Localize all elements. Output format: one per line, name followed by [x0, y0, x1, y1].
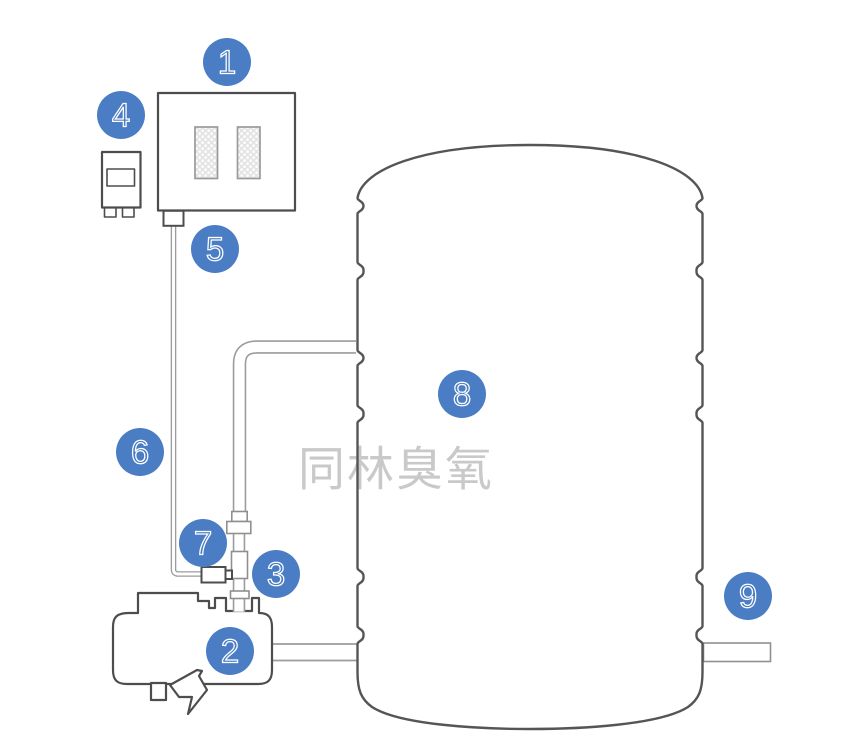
controller-unit: [102, 152, 141, 217]
badge-7-number: 7: [194, 525, 212, 562]
badge-3: 3: [252, 550, 300, 598]
badge-9-number: 9: [739, 578, 757, 615]
ozone-generator: [158, 93, 295, 226]
badge-6: 6: [116, 428, 164, 476]
badge-2: 2: [206, 627, 254, 675]
valve-body-fitting: [232, 552, 248, 579]
pump-to-barrel-pipe: [272, 644, 358, 661]
badge-4-number: 4: [112, 97, 130, 134]
controller-display: [107, 169, 135, 186]
check-valve: [202, 567, 226, 583]
controller-foot-right: [123, 208, 135, 218]
badge-3-number: 3: [267, 556, 285, 593]
badge-8: 8: [438, 370, 486, 418]
badge-2-number: 2: [221, 633, 239, 670]
storage-barrel: 同林臭氧: [272, 145, 771, 729]
union-nut-fitting: [231, 591, 250, 599]
badge-5-number: 5: [206, 231, 224, 268]
badge-7: 7: [179, 519, 227, 567]
barrel-outlet-pipe: [704, 643, 771, 662]
badge-1-number: 1: [218, 44, 236, 81]
badge-6-number: 6: [131, 434, 149, 471]
badge-8-number: 8: [453, 376, 471, 413]
badge-5: 5: [191, 225, 239, 273]
generator-cabinet: [158, 93, 295, 211]
pump-foot: [151, 683, 166, 700]
generator-plate-right: [238, 127, 261, 179]
tube-collar-upper: [232, 512, 247, 522]
watermark-text: 同林臭氧: [298, 443, 494, 496]
tee-fitting: [227, 522, 251, 534]
badge-9: 9: [724, 572, 772, 620]
barrel-body-fill: [358, 145, 703, 729]
badge-4: 4: [97, 91, 145, 139]
badge-1: 1: [203, 38, 251, 86]
generator-outlet-fitting: [164, 211, 184, 226]
generator-plate-left: [195, 127, 218, 179]
ozone-system-diagram: 同林臭氧: [0, 0, 863, 749]
controller-foot-left: [105, 208, 117, 218]
